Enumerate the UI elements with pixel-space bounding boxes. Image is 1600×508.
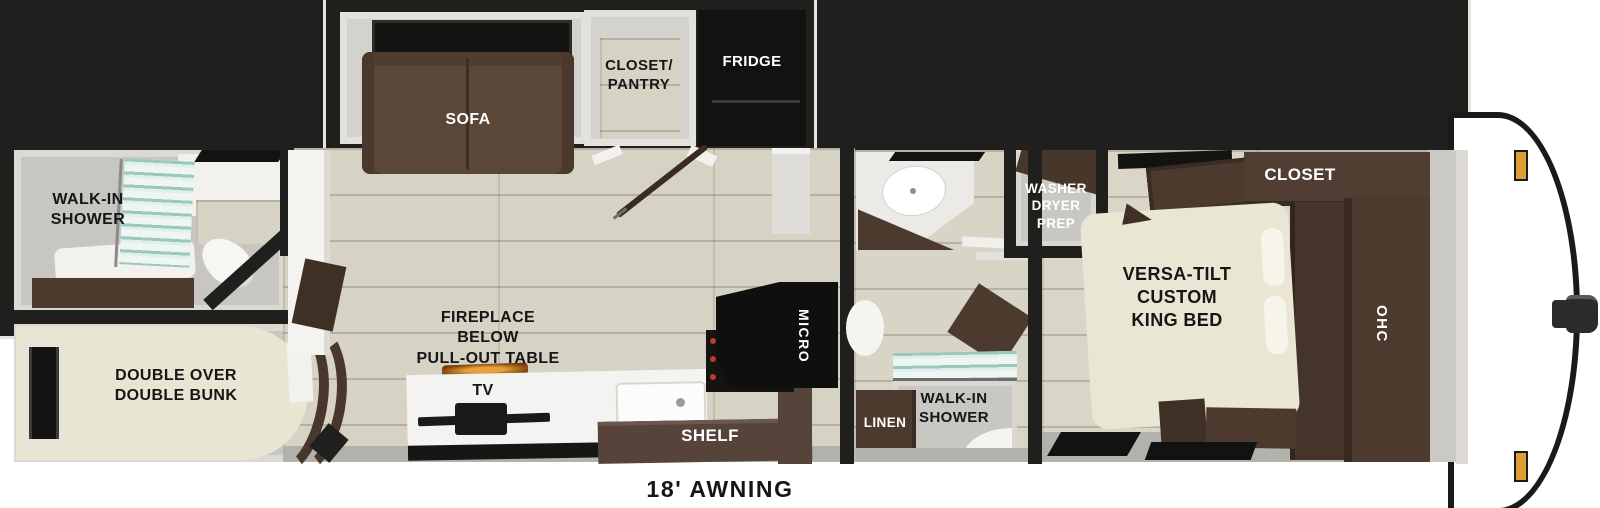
bed-pillow-notch-2 (1263, 295, 1288, 354)
bed-nightstand (1159, 398, 1208, 445)
shelf-label: SHELF (650, 425, 770, 447)
range-knob-1 (710, 338, 716, 344)
bunk-label: DOUBLE OVER DOUBLE BUNK (86, 366, 266, 407)
mid-toilet-icon (846, 300, 884, 356)
fridge-label: FRIDGE (700, 52, 804, 71)
sofa-label: SOFA (428, 110, 508, 130)
closet-label: CLOSET (1250, 164, 1350, 186)
bedroom-right-wall-band (1428, 150, 1456, 462)
range-knob-3 (710, 374, 716, 380)
floorplan-canvas: WALK-IN SHOWER DOUBLE OVER DOUBLE BUNK S… (0, 0, 1600, 508)
front-cap-inner-edge (1456, 150, 1468, 464)
micro-label: MICRO (794, 298, 812, 374)
marker-light-bottom (1514, 451, 1528, 482)
awning-label: 18' AWNING (550, 475, 890, 504)
shelf-counter-side (778, 382, 812, 464)
range-knob-2 (710, 356, 716, 362)
linen-label: LINEN (852, 414, 918, 431)
mid-bath-counter-edge (889, 152, 985, 161)
mid-bath-walkway (856, 448, 1030, 462)
fridge-detail-line (712, 100, 800, 103)
hitch-coupler-icon (1566, 295, 1598, 333)
washer-label: WASHER DRYER PREP (1010, 180, 1102, 232)
bath-bunk-divider-wall (8, 310, 290, 324)
tv-mount-icon (455, 403, 507, 435)
marker-light-top (1514, 150, 1528, 181)
bed-headboard-cabinet (1290, 202, 1344, 460)
ohc-label: OHC (1372, 288, 1391, 360)
entry-side-wall (772, 148, 810, 234)
rear-shower-label: WALK-IN SHOWER (22, 190, 154, 231)
bunk-window-icon (26, 344, 62, 442)
bedroom-window-2 (1145, 442, 1258, 460)
closet-pantry-label: CLOSET/ PANTRY (584, 56, 694, 94)
rear-bath-vanity (32, 278, 194, 308)
tv-label: TV (462, 381, 504, 401)
bedroom-window-1 (1047, 432, 1141, 456)
fridge (698, 10, 806, 146)
microwave (716, 282, 838, 388)
mid-shower-glass-icon (893, 351, 1017, 381)
rear-bath-window-icon (194, 150, 285, 162)
fireplace-label: FIREPLACE BELOW PULL-OUT TABLE (388, 308, 588, 369)
mid-bath-sink-drain (910, 188, 916, 194)
sink-faucet-icon (676, 398, 685, 407)
king-bed-label: VERSA-TILT CUSTOM KING BED (1088, 263, 1266, 332)
